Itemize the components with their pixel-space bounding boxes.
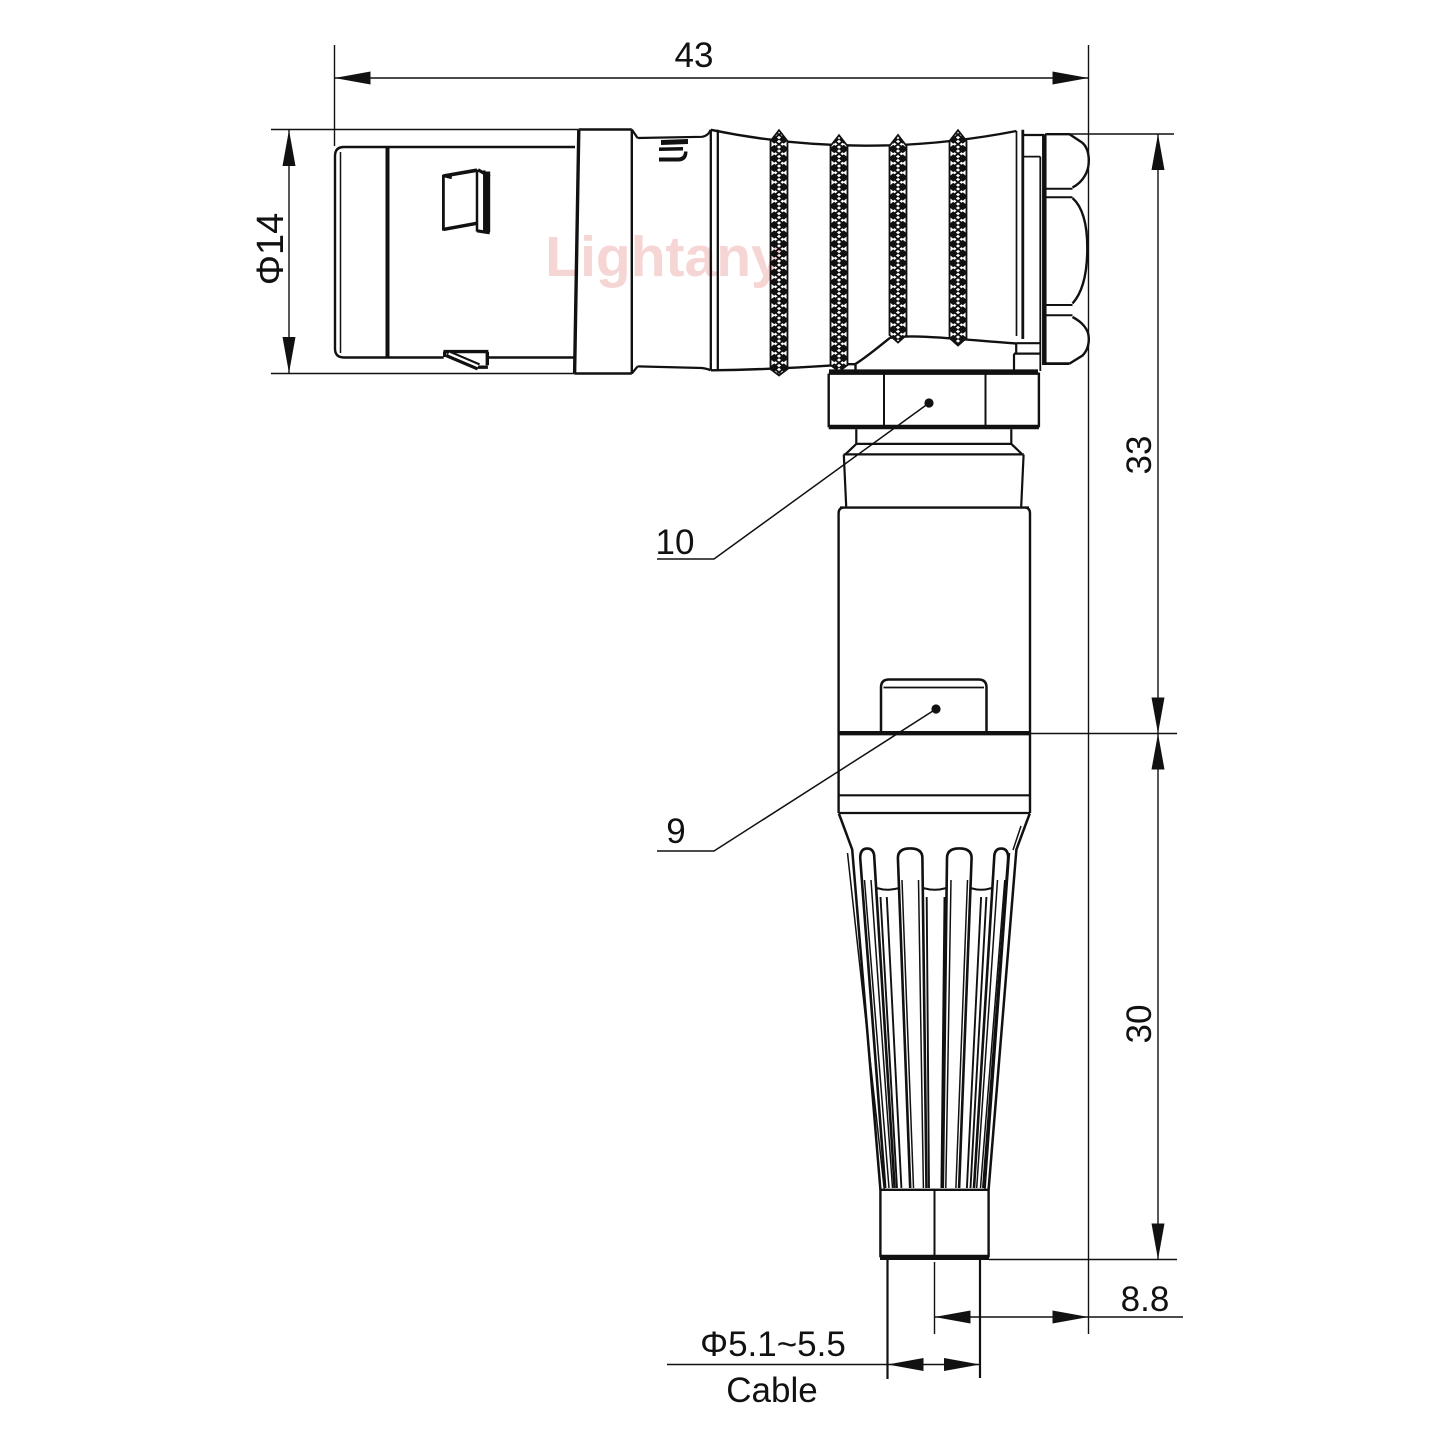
svg-text:33: 33 — [1120, 436, 1159, 475]
svg-text:Cable: Cable — [726, 1371, 817, 1410]
svg-text:43: 43 — [675, 36, 714, 75]
svg-text:30: 30 — [1120, 1005, 1159, 1044]
svg-text:Φ14: Φ14 — [250, 213, 292, 286]
svg-text:Φ5.1~5.5: Φ5.1~5.5 — [700, 1325, 846, 1364]
svg-text:8.8: 8.8 — [1121, 1280, 1170, 1319]
svg-text:Lightany: Lightany — [545, 225, 783, 289]
svg-text:9: 9 — [666, 812, 685, 851]
svg-text:10: 10 — [656, 523, 695, 562]
